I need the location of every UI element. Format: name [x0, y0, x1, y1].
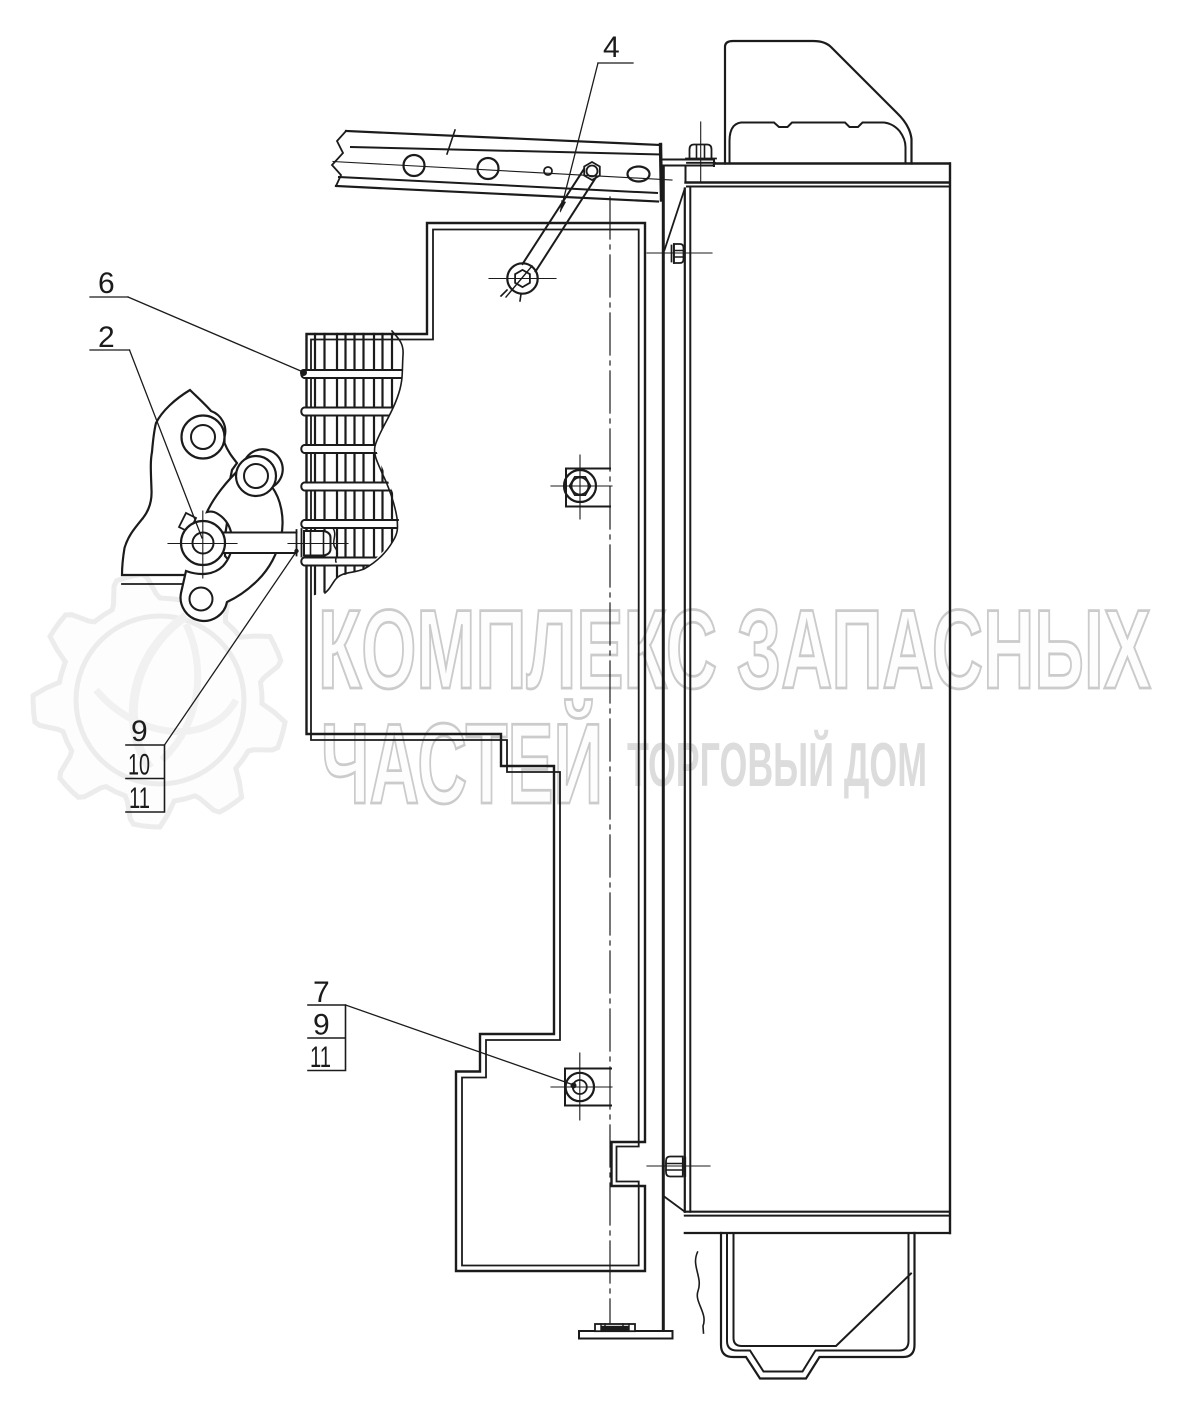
svg-text:9: 9 [131, 715, 148, 748]
svg-text:11: 11 [129, 782, 150, 815]
svg-text:2: 2 [98, 321, 115, 354]
svg-text:6: 6 [98, 267, 115, 300]
svg-text:9: 9 [313, 1009, 330, 1042]
svg-text:КОМПЛЕКС ЗАПАСНЫХ: КОМПЛЕКС ЗАПАСНЫХ [318, 587, 1151, 712]
svg-text:10: 10 [128, 749, 150, 782]
svg-text:4: 4 [603, 31, 620, 64]
svg-text:11: 11 [310, 1041, 331, 1074]
svg-text:ТОРГОВЫЙ ДОМ: ТОРГОВЫЙ ДОМ [627, 730, 927, 800]
svg-text:7: 7 [313, 976, 330, 1009]
